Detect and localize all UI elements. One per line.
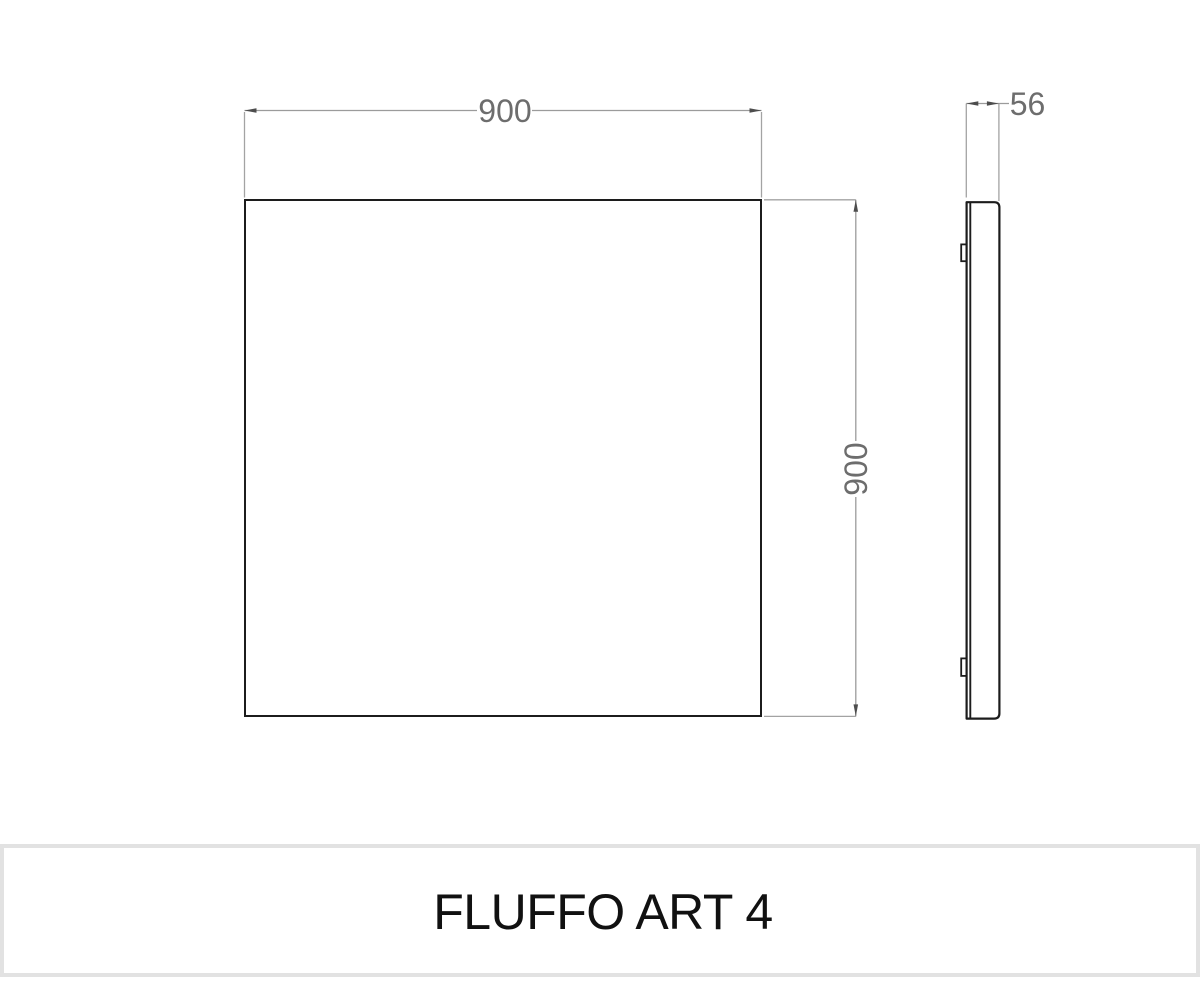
svg-text:900: 900	[478, 93, 531, 129]
svg-text:56: 56	[1010, 86, 1046, 122]
svg-text:900: 900	[838, 442, 874, 495]
